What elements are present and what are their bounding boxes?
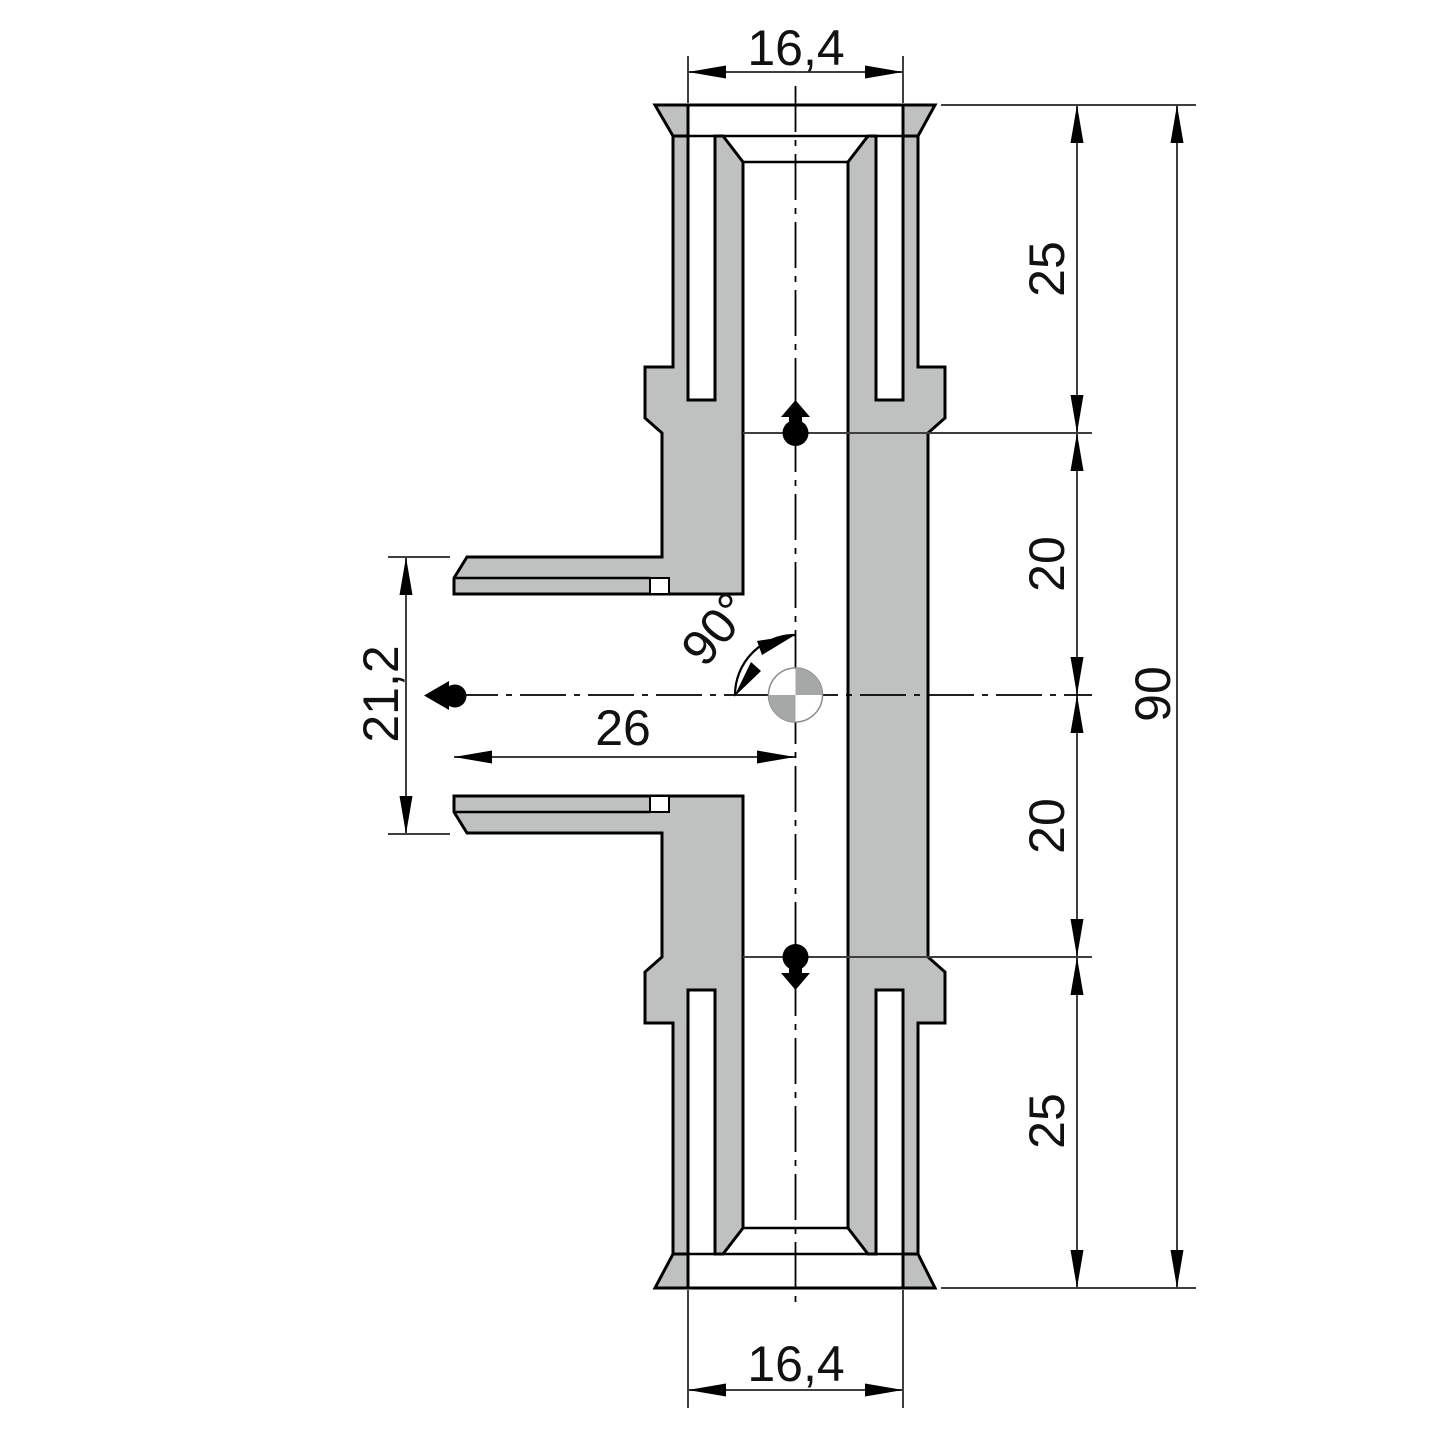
arrow-branch-depth-left: [454, 751, 492, 764]
branch-top-wall-groove: [650, 578, 669, 594]
center-marker-quadrant-ne: [796, 668, 823, 695]
arrow-chain-top-up: [1071, 105, 1084, 143]
arrow-branch-outer-top: [400, 557, 413, 595]
body-left-upper: [454, 136, 743, 594]
label-overall-length: 90: [1125, 666, 1181, 722]
connection-point-left: [424, 681, 467, 710]
arrow-top-socket-right: [865, 66, 903, 79]
bottom-collar-right-wedge: [903, 1254, 935, 1288]
label-top-socket-width: 16,4: [747, 20, 844, 76]
label-bottom-port-length: 25: [1019, 1093, 1075, 1149]
connection-point-top: [781, 400, 810, 446]
label-top-port-length: 25: [1019, 241, 1075, 297]
label-branch-outer-width: 21,2: [353, 645, 409, 742]
technical-drawing-page: 16,4 16,4 21,2 26 90° 25 20 20 25 90: [0, 0, 1445, 1445]
top-collar-right-wedge: [903, 105, 935, 136]
center-marker: [769, 668, 823, 722]
arrow-chain-433-up: [1071, 433, 1084, 471]
arrow-top-socket-left: [688, 66, 726, 79]
arrow-bottom-socket-right: [865, 1384, 903, 1397]
bottom-collar-left-wedge: [655, 1254, 688, 1288]
angle-arrow-lower: [734, 662, 761, 697]
label-upper-body-length: 20: [1019, 536, 1075, 592]
arrow-chain-957-up: [1071, 957, 1084, 995]
branch-bottom-wall-groove: [650, 796, 669, 812]
arrow-branch-outer-bottom: [400, 796, 413, 834]
label-bottom-socket-width: 16,4: [747, 1336, 844, 1392]
arrow-chain-695-up: [1071, 695, 1084, 733]
arrow-branch-depth-right: [757, 751, 795, 764]
top-collar-left-wedge: [655, 105, 688, 136]
arrow-overall-bottom: [1171, 1250, 1184, 1288]
angle-arrow-upper: [757, 635, 795, 655]
label-branch-center-depth: 26: [595, 700, 651, 756]
body-left-lower: [454, 796, 743, 1254]
fitting-body: [454, 105, 945, 1288]
label-branch-angle: 90°: [670, 582, 762, 676]
technical-drawing-canvas: 16,4 16,4 21,2 26 90° 25 20 20 25 90: [0, 0, 1445, 1445]
arrow-chain-957-down: [1071, 919, 1084, 957]
arrow-overall-top: [1171, 105, 1184, 143]
arrow-chain-433-down: [1071, 395, 1084, 433]
arrow-chain-bottom-down: [1071, 1250, 1084, 1288]
center-marker-quadrant-sw: [769, 695, 796, 722]
dimension-labels: 16,4 16,4 21,2 26 90° 25 20 20 25 90: [353, 20, 1181, 1392]
arrow-bottom-socket-left: [688, 1384, 726, 1397]
label-lower-body-length: 20: [1019, 798, 1075, 854]
arrow-chain-695-down: [1071, 657, 1084, 695]
connection-point-bottom: [781, 944, 810, 990]
